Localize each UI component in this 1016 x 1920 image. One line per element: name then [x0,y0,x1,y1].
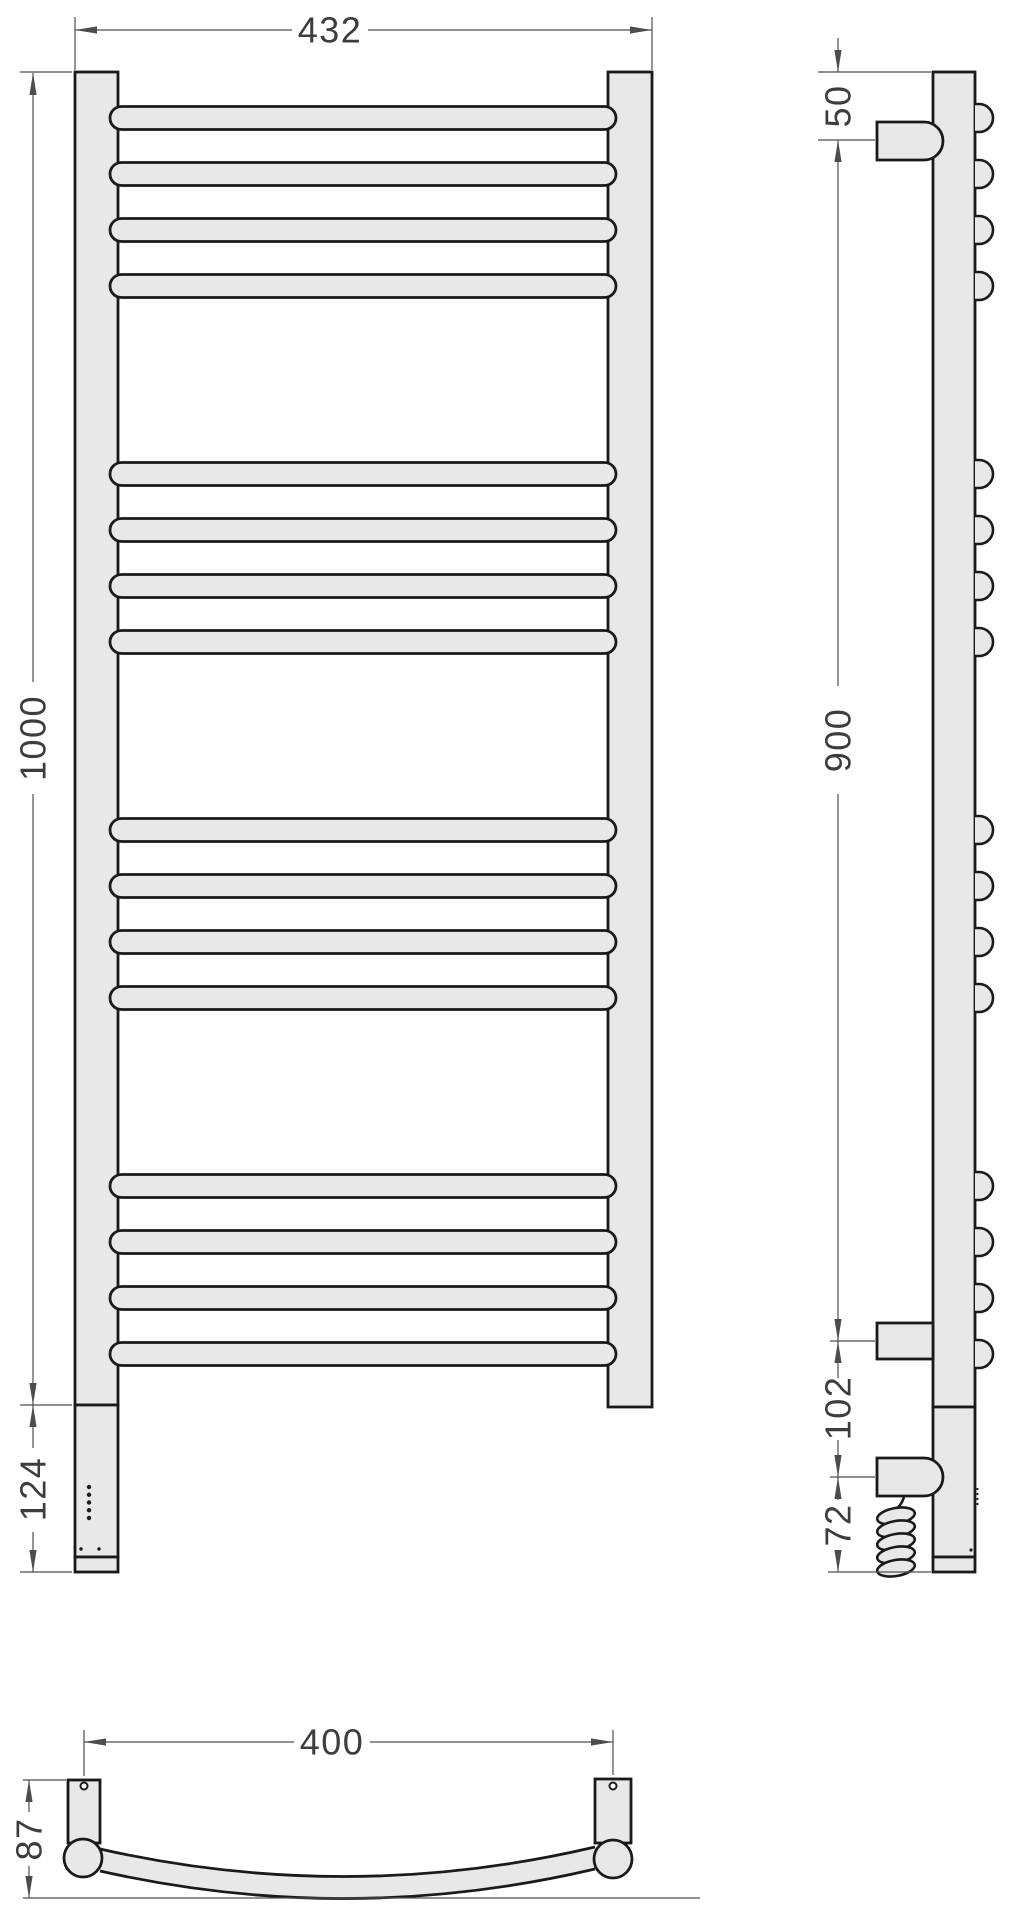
dimension-arrowhead [591,1738,613,1745]
led-indicator-dot [87,1508,91,1512]
dim-element-spacing: 102 [818,1376,859,1441]
led-indicator-dot [87,1493,91,1497]
side-wall-bracket [877,1323,933,1359]
right-mount-hole [610,1783,617,1790]
front-view [75,72,652,1572]
side-detail-dot [969,1548,972,1551]
front-rung [110,987,616,1010]
side-detail-dot [976,1493,978,1495]
side-top-fitting [877,122,943,160]
dim-depth: 87 [9,1817,50,1860]
drawing-sheet: 4321000124509001027240087 [0,0,1016,1920]
side-control-bottom-cap [933,1557,975,1572]
left-rail-cross-section [64,1839,102,1877]
front-rung [110,219,616,242]
front-rung [110,275,616,298]
dim-width-overall: 432 [298,10,363,51]
dimension-arrowhead [834,1319,841,1341]
dim-control-height: 124 [13,1457,54,1522]
dimension-arrowhead [834,1477,841,1499]
front-rung [110,1287,616,1310]
front-rung [110,575,616,598]
led-indicator-dot [87,1516,91,1520]
control-button-dot [79,1547,82,1550]
dim-top-offset: 50 [818,84,859,127]
dim-mount-width: 400 [300,1722,365,1763]
dimension-arrowhead [25,1780,32,1802]
front-rung [110,875,616,898]
dimension-arrowhead [630,26,652,33]
side-detail-dot [976,1503,978,1505]
front-rung [110,107,616,130]
front-rung [110,463,616,486]
dim-cable-drop: 72 [818,1503,859,1546]
dim-height-overall: 1000 [13,695,54,781]
bottom-view [64,1779,632,1899]
front-control-bottom-cap [75,1557,118,1572]
led-indicator-dot [87,1500,91,1504]
left-mount-hole [81,1783,88,1790]
front-rung [110,163,616,186]
side-rail [933,72,975,1407]
dim-mount-span: 900 [818,708,859,773]
front-control-housing [75,1405,118,1557]
dimension-arrowhead [834,1455,841,1477]
side-heating-element [877,1458,943,1496]
dimension-arrowhead [834,1341,841,1363]
technical-drawing-canvas: 4321000124509001027240087 [0,0,1016,1920]
led-indicator-dot [87,1485,91,1489]
front-rung [110,631,616,654]
front-rung [110,519,616,542]
curved-rung-band [100,1847,595,1899]
front-rung [110,1343,616,1366]
front-rung [110,819,616,842]
dimension-arrowhead [834,1550,841,1572]
dimension-arrowhead [25,1876,32,1898]
front-rung [110,931,616,954]
control-button-dot [97,1547,100,1550]
front-right-rail [608,72,652,1407]
side-view [876,72,993,1579]
side-detail-dot [976,1498,978,1500]
front-rung [110,1231,616,1254]
dimension-arrowhead [29,1383,36,1405]
dimension-arrowhead [75,26,97,33]
dimension-arrowhead [84,1738,106,1745]
dimension-arrowhead [29,73,36,95]
dimension-arrowhead [834,50,841,72]
dimension-arrowhead [29,1550,36,1572]
front-left-rail [75,72,118,1405]
dimension-arrowhead [29,1405,36,1427]
front-rung [110,1175,616,1198]
right-rail-cross-section [594,1840,632,1878]
dimension-arrowhead [834,140,841,162]
side-detail-dot [976,1488,978,1490]
